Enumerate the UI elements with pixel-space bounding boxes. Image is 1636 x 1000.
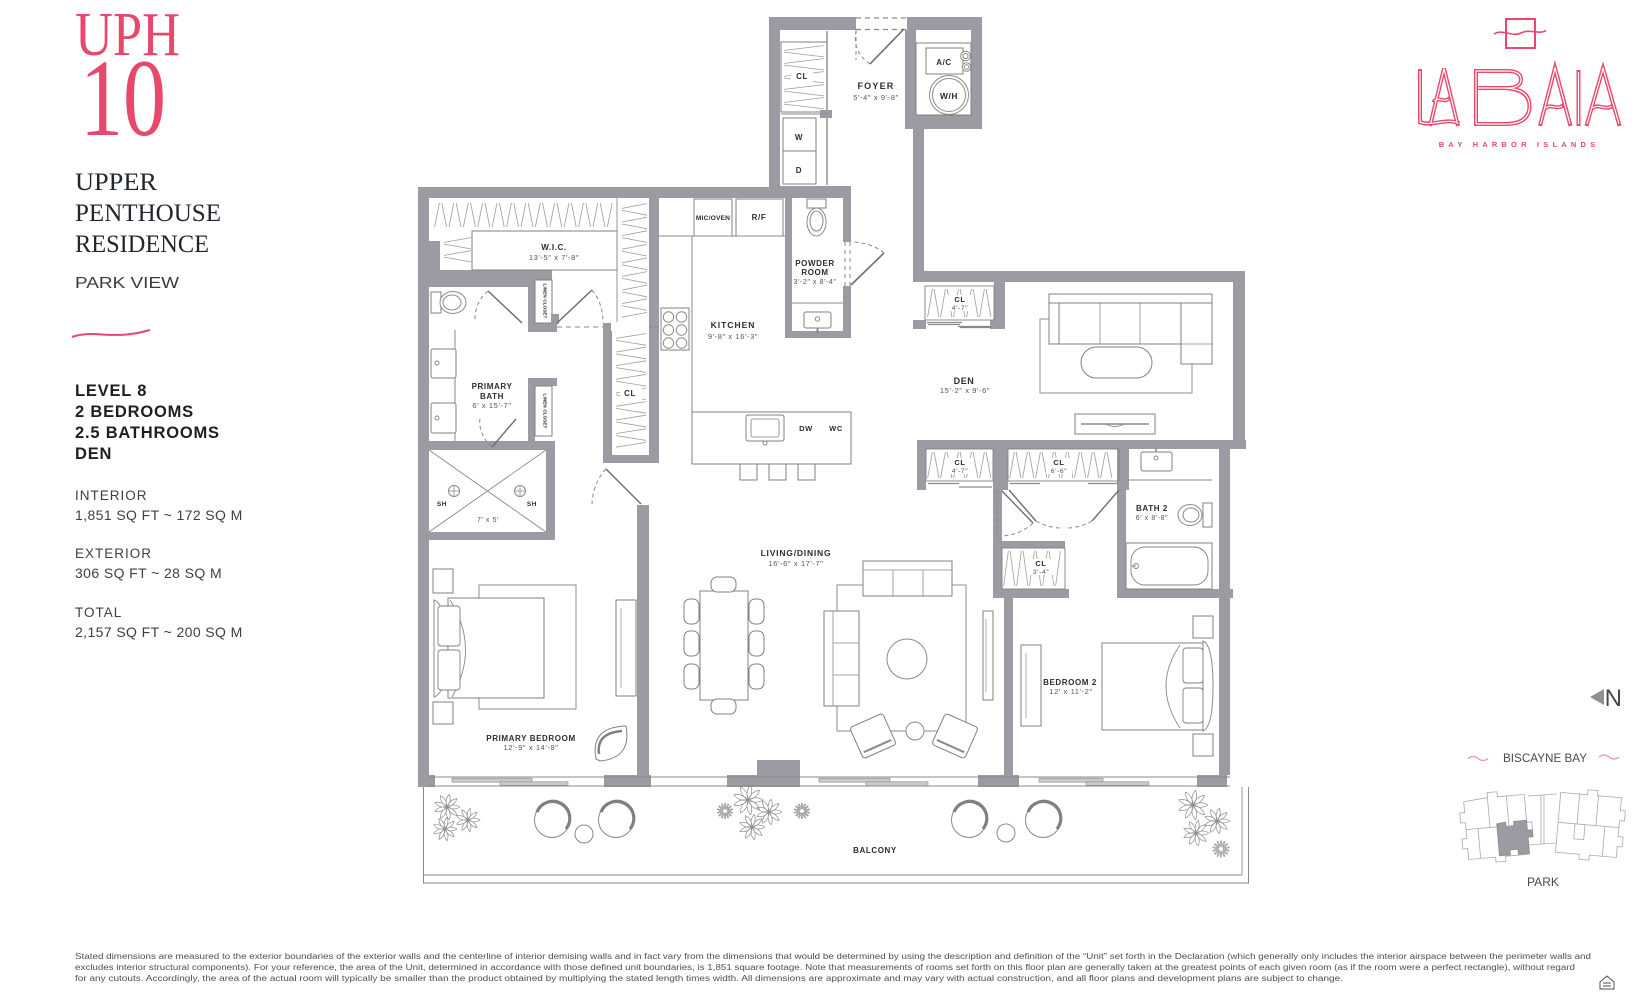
svg-text:15′-2″ x 9′-6″: 15′-2″ x 9′-6″ — [940, 386, 990, 395]
svg-text:12′ x 11′-2″: 12′ x 11′-2″ — [1049, 687, 1092, 696]
svg-text:9′-8″ x 16′-3″: 9′-8″ x 16′-3″ — [708, 332, 758, 341]
svg-text:RESIDENCE: RESIDENCE — [75, 229, 209, 258]
svg-text:12′-9″ x 14′-8″: 12′-9″ x 14′-8″ — [503, 743, 558, 752]
svg-text:POWDER: POWDER — [795, 259, 835, 268]
svg-text:CL: CL — [796, 72, 808, 81]
svg-text:16′-6″ x 17′-7″: 16′-6″ x 17′-7″ — [768, 559, 823, 568]
svg-text:4′-7″: 4′-7″ — [952, 305, 969, 312]
svg-text:R/F: R/F — [752, 213, 767, 222]
svg-text:W.I.C.: W.I.C. — [541, 243, 566, 252]
svg-text:306 SQ FT ~ 28 SQ M: 306 SQ FT ~ 28 SQ M — [75, 565, 222, 581]
svg-text:WC: WC — [829, 424, 843, 433]
svg-text:CL: CL — [954, 295, 965, 304]
svg-text:excludes interior structural c: excludes interior structural components)… — [75, 962, 1575, 972]
svg-text:6′ x 15′-7″: 6′ x 15′-7″ — [472, 401, 511, 410]
svg-text:DEN: DEN — [954, 376, 975, 386]
svg-text:SH: SH — [527, 501, 537, 508]
svg-text:7′ x 5′: 7′ x 5′ — [477, 517, 499, 524]
svg-text:DEN: DEN — [75, 445, 112, 463]
svg-text:2.5 BATHROOMS: 2.5 BATHROOMS — [75, 424, 220, 442]
svg-text:for any cutouts. Accordingly,: for any cutouts. Accordingly, the area o… — [75, 973, 1343, 983]
svg-text:10: 10 — [80, 37, 166, 159]
svg-text:FOYER: FOYER — [857, 81, 894, 91]
svg-text:SH: SH — [437, 501, 447, 508]
svg-text:CL: CL — [624, 389, 636, 398]
svg-text:UPPER: UPPER — [75, 167, 157, 196]
svg-text:3′-2″ x 8′-4″: 3′-2″ x 8′-4″ — [793, 279, 836, 286]
svg-text:LINEN CLOSET: LINEN CLOSET — [543, 284, 548, 319]
svg-text:DW: DW — [799, 424, 813, 433]
svg-text:1,851 SQ FT ~ 172 SQ M: 1,851 SQ FT ~ 172 SQ M — [75, 507, 243, 523]
svg-text:MIC/OVEN: MIC/OVEN — [696, 215, 730, 222]
svg-text:PRIMARY BEDROOM: PRIMARY BEDROOM — [486, 734, 575, 743]
svg-text:BAY HARBOR ISLANDS: BAY HARBOR ISLANDS — [1439, 140, 1600, 149]
svg-text:CL: CL — [1035, 559, 1046, 568]
svg-text:ROOM: ROOM — [801, 268, 828, 277]
svg-text:3′-4″: 3′-4″ — [1033, 569, 1050, 576]
svg-text:Stated dimensions are measured: Stated dimensions are measured to the ex… — [75, 951, 1591, 961]
svg-text:2,157 SQ FT ~ 200 SQ M: 2,157 SQ FT ~ 200 SQ M — [75, 624, 243, 640]
svg-text:A/C: A/C — [936, 58, 952, 67]
svg-text:INTERIOR: INTERIOR — [75, 488, 148, 503]
svg-text:6′ x 8′-8″: 6′ x 8′-8″ — [1136, 515, 1169, 522]
svg-text:PENTHOUSE: PENTHOUSE — [75, 198, 221, 227]
svg-text:BALCONY: BALCONY — [853, 846, 897, 855]
svg-text:EXTERIOR: EXTERIOR — [75, 546, 152, 561]
svg-text:BATH 2: BATH 2 — [1136, 504, 1168, 513]
svg-text:6′-6″: 6′-6″ — [1051, 468, 1068, 475]
svg-text:W: W — [795, 133, 803, 142]
svg-text:BEDROOM 2: BEDROOM 2 — [1043, 678, 1097, 687]
svg-text:PRIMARY: PRIMARY — [472, 382, 513, 391]
svg-text:PARK VIEW: PARK VIEW — [75, 275, 180, 292]
svg-text:CL: CL — [954, 458, 965, 467]
svg-text:KITCHEN: KITCHEN — [711, 320, 756, 330]
svg-text:W/H: W/H — [940, 91, 958, 101]
svg-text:5′-4″ x 9′-8″: 5′-4″ x 9′-8″ — [853, 93, 899, 102]
svg-text:N: N — [1605, 685, 1622, 712]
svg-text:2 BEDROOMS: 2 BEDROOMS — [75, 403, 194, 421]
svg-text:CL: CL — [1053, 458, 1064, 467]
svg-text:LINEN CLOSET: LINEN CLOSET — [543, 394, 548, 429]
svg-text:TOTAL: TOTAL — [75, 605, 122, 620]
svg-text:BISCAYNE BAY: BISCAYNE BAY — [1503, 753, 1587, 765]
svg-text:BATH: BATH — [480, 392, 504, 401]
svg-text:4′-7″: 4′-7″ — [952, 468, 969, 475]
svg-text:LEVEL 8: LEVEL 8 — [75, 382, 147, 400]
svg-text:D: D — [796, 166, 802, 175]
svg-text:13′-5″ x 7′-8″: 13′-5″ x 7′-8″ — [529, 253, 579, 262]
svg-text:PARK: PARK — [1527, 875, 1559, 889]
svg-text:LIVING/DINING: LIVING/DINING — [761, 548, 832, 558]
